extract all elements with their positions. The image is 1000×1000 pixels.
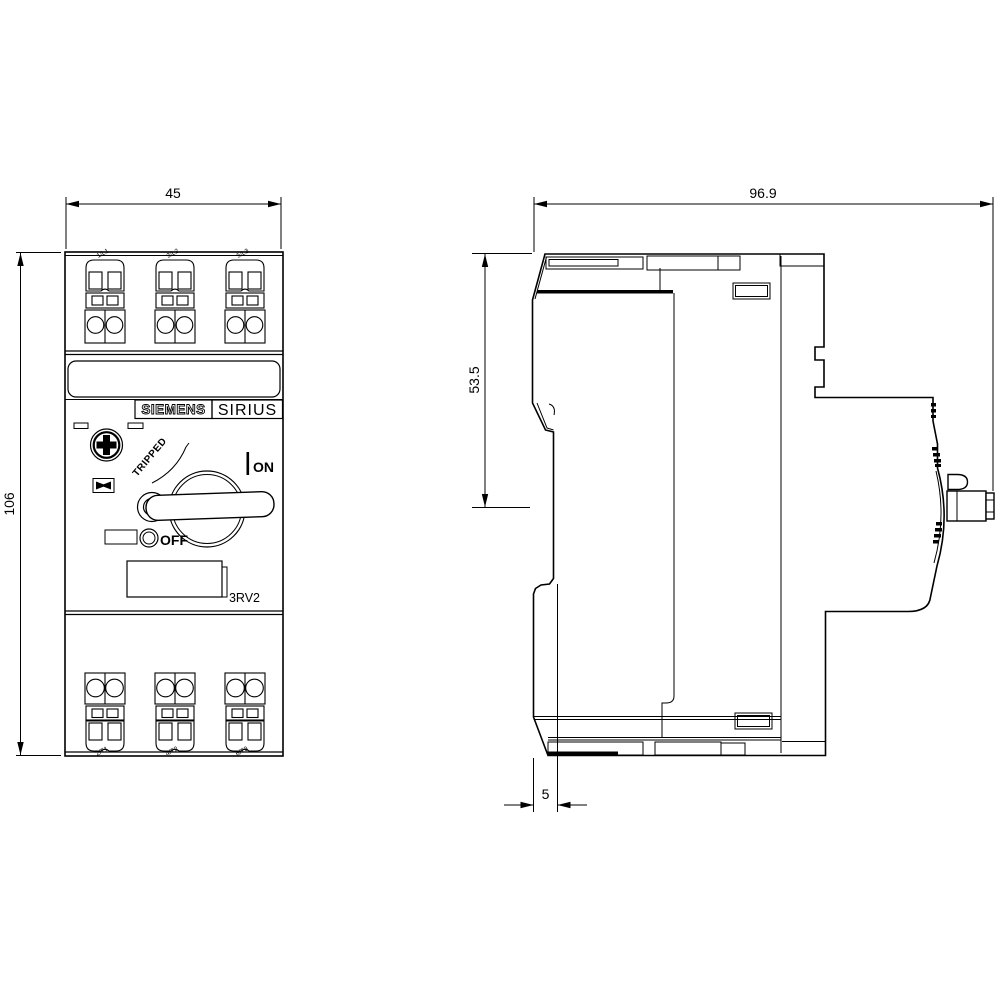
handle-lever [146, 491, 275, 520]
cover-band [68, 361, 280, 397]
off-marking: OFF [140, 529, 188, 548]
technical-drawing: 1/L1 3/L2 5/L3 SIEMENS SIRIUS [0, 0, 1000, 1000]
test-symbol [93, 479, 114, 493]
arrowhead [268, 201, 281, 207]
upper-separation-lines [65, 351, 283, 355]
on-bar [247, 452, 250, 475]
front-view: 1/L1 3/L2 5/L3 SIEMENS SIRIUS [65, 247, 283, 757]
arrowhead [534, 201, 547, 207]
off-label: OFF [160, 532, 188, 548]
dim-5-label: 5 [542, 786, 550, 802]
terminal-group-1L1 [85, 260, 125, 343]
face-slot-right [128, 423, 143, 429]
side-vent-bottom [735, 713, 772, 729]
siemens-logo: SIEMENS [141, 402, 205, 417]
shaft-boss-arc [934, 471, 941, 563]
terminal-label: 1/L1 [96, 247, 111, 259]
dial-cross [97, 435, 117, 455]
model-label: 3RV2 [229, 591, 260, 605]
adjustment-dial [91, 429, 123, 461]
dim-106-label: 106 [1, 492, 17, 516]
on-marking: ON [247, 452, 275, 475]
dim-969-label: 96.9 [749, 185, 776, 201]
face-slot-left [74, 423, 88, 429]
arrowhead [17, 253, 23, 266]
dimension-side-depth: 96.9 [534, 185, 993, 491]
dimension-handle-depth: 53.5 [466, 254, 532, 508]
terminal-group-4T2 [155, 673, 195, 751]
brand-strip: SIEMENS SIRIUS [135, 400, 283, 419]
tripped-indicator: TRIPPED [131, 436, 189, 483]
arrowhead [17, 742, 23, 755]
terminal-group-2T1 [85, 673, 125, 751]
terminal-group-5L3 [225, 260, 265, 343]
side-thick-bar [537, 290, 673, 294]
shaft-end-cap [986, 493, 994, 519]
terminal-group-3L2 [155, 260, 195, 343]
arrowhead [980, 201, 993, 207]
side-vent-top [733, 283, 770, 299]
dim-535-label: 53.5 [466, 366, 482, 393]
off-circle-inner [143, 532, 155, 544]
rail-dark-strip [548, 752, 618, 755]
sirius-label: SIRIUS [218, 402, 277, 419]
terminal-label: 5/L3 [236, 247, 251, 259]
terminal-group-6T3 [225, 673, 265, 751]
dimension-bottom-offset: 5 [504, 584, 587, 812]
shaft-block [947, 491, 986, 521]
dim-45-label: 45 [165, 185, 181, 201]
side-internal-lines [537, 256, 781, 753]
shaft-knob [948, 475, 968, 490]
arrowhead [482, 494, 488, 507]
arrowhead [66, 201, 79, 207]
bottom-terminal-block: 2/T1 4/T2 6/T3 [85, 673, 265, 758]
front-face: TRIPPED ON [74, 423, 274, 605]
tripped-label: TRIPPED [131, 436, 170, 479]
side-silhouette [533, 254, 945, 756]
on-label: ON [253, 459, 274, 475]
arrowhead [482, 254, 488, 267]
lower-separation-lines [65, 611, 283, 752]
dimension-front-width: 45 [66, 185, 281, 249]
arrowhead [521, 802, 534, 808]
dimension-front-height: 106 [1, 253, 61, 756]
face-slot-lower [105, 530, 137, 544]
label-field [127, 561, 227, 597]
top-terminal-block: 1/L1 3/L2 5/L3 [85, 247, 265, 343]
terminal-label: 3/L2 [166, 247, 181, 259]
arrowhead [558, 802, 571, 808]
side-view [533, 254, 995, 756]
